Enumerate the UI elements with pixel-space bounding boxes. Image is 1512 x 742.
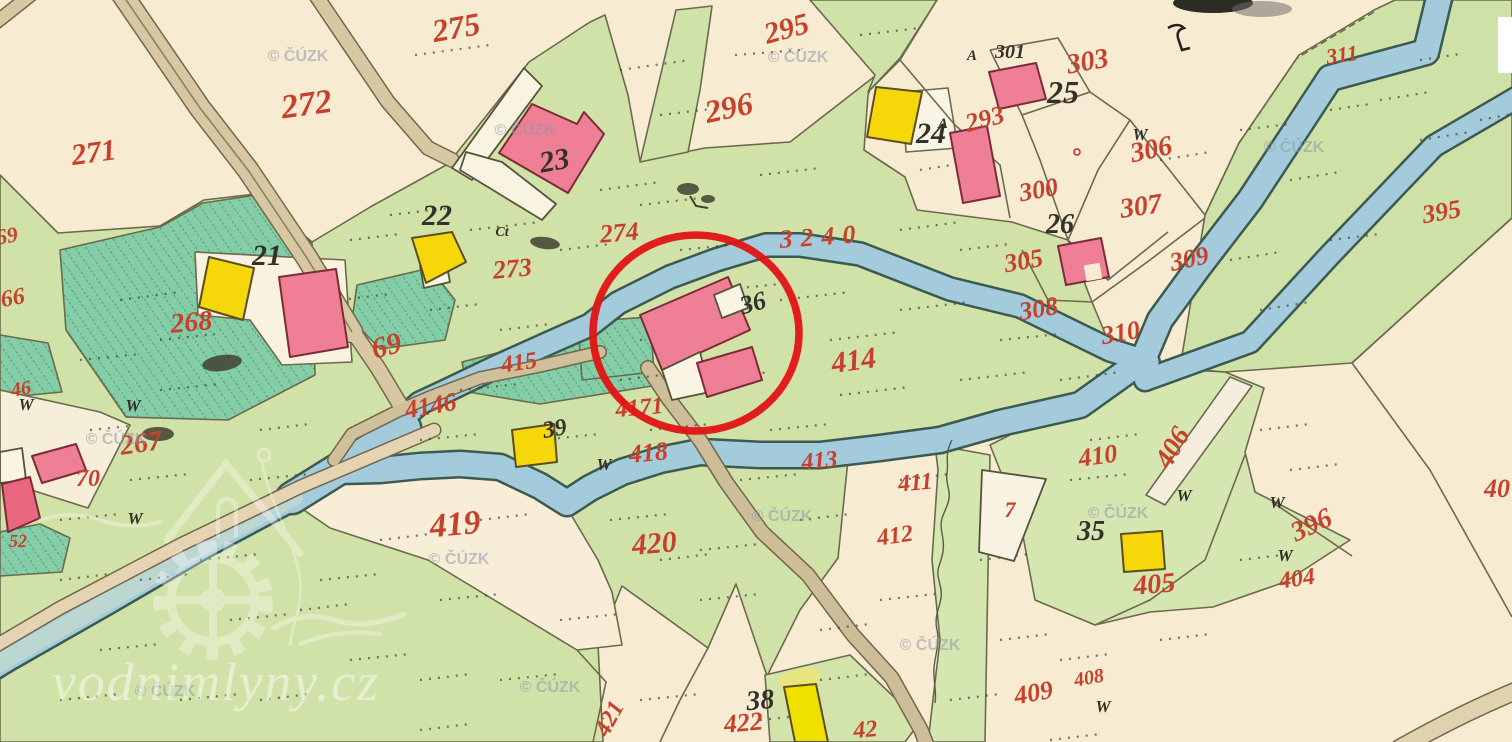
svg-text:© ČÚZK: © ČÚZK — [900, 635, 961, 654]
svg-text:7: 7 — [1005, 497, 1017, 522]
svg-text:© ČÚZK: © ČÚZK — [495, 120, 556, 139]
svg-text:272: 272 — [278, 83, 335, 127]
svg-text:311: 311 — [1323, 40, 1359, 69]
svg-text:411: 411 — [896, 469, 934, 498]
svg-text:301: 301 — [994, 41, 1025, 63]
svg-text:413: 413 — [799, 447, 838, 476]
svg-text:W: W — [1095, 697, 1112, 716]
svg-text:412: 412 — [874, 521, 914, 552]
svg-text:274: 274 — [598, 216, 640, 248]
svg-text:38: 38 — [744, 684, 776, 717]
svg-text:418: 418 — [627, 436, 669, 468]
svg-text:24: 24 — [915, 117, 946, 150]
svg-text:3240: 3240 — [778, 219, 865, 254]
svg-text:52: 52 — [9, 531, 27, 551]
svg-text:W: W — [1277, 546, 1294, 565]
svg-text:46: 46 — [8, 377, 33, 402]
svg-text:414: 414 — [828, 341, 878, 380]
svg-text:21: 21 — [251, 239, 282, 272]
svg-text:A: A — [966, 48, 977, 64]
svg-text:404: 404 — [1276, 564, 1316, 595]
svg-text:W: W — [1176, 486, 1193, 505]
svg-text:W: W — [1269, 493, 1286, 512]
svg-text:vodnimlyny.cz: vodnimlyny.cz — [52, 652, 378, 712]
svg-text:273: 273 — [491, 252, 533, 284]
svg-text:268: 268 — [168, 305, 214, 340]
svg-text:410: 410 — [1075, 439, 1119, 473]
svg-text:415: 415 — [498, 348, 538, 379]
svg-text:© ČÚZK: © ČÚZK — [429, 549, 490, 568]
svg-text:© ČÚZK: © ČÚZK — [268, 46, 329, 65]
svg-text:© ČÚZK: © ČÚZK — [1264, 137, 1325, 156]
svg-text:25: 25 — [1046, 74, 1079, 110]
svg-text:© ČÚZK: © ČÚZK — [520, 677, 581, 696]
svg-text:© ČÚZK: © ČÚZK — [768, 47, 829, 66]
svg-text:420: 420 — [629, 525, 678, 562]
svg-text:© ČÚZK: © ČÚZK — [1088, 503, 1149, 522]
svg-text:26: 26 — [1045, 209, 1074, 240]
svg-text:419: 419 — [427, 504, 482, 545]
svg-text:70: 70 — [76, 466, 100, 492]
svg-text:42: 42 — [851, 716, 878, 742]
svg-text:271: 271 — [68, 133, 118, 172]
svg-text:22: 22 — [421, 199, 452, 232]
svg-text:66: 66 — [0, 283, 27, 313]
svg-text:23: 23 — [536, 142, 572, 180]
svg-text:405: 405 — [1131, 567, 1177, 602]
svg-text:40: 40 — [1483, 474, 1510, 503]
svg-text:Ct: Ct — [495, 225, 509, 240]
svg-text:307: 307 — [1117, 188, 1165, 225]
svg-text:W: W — [125, 396, 142, 415]
svg-text:© ČÚZK: © ČÚZK — [752, 506, 813, 525]
svg-text:39: 39 — [540, 414, 569, 444]
svg-text:W: W — [596, 455, 613, 474]
svg-text:© ČÚZK: © ČÚZK — [86, 429, 147, 448]
